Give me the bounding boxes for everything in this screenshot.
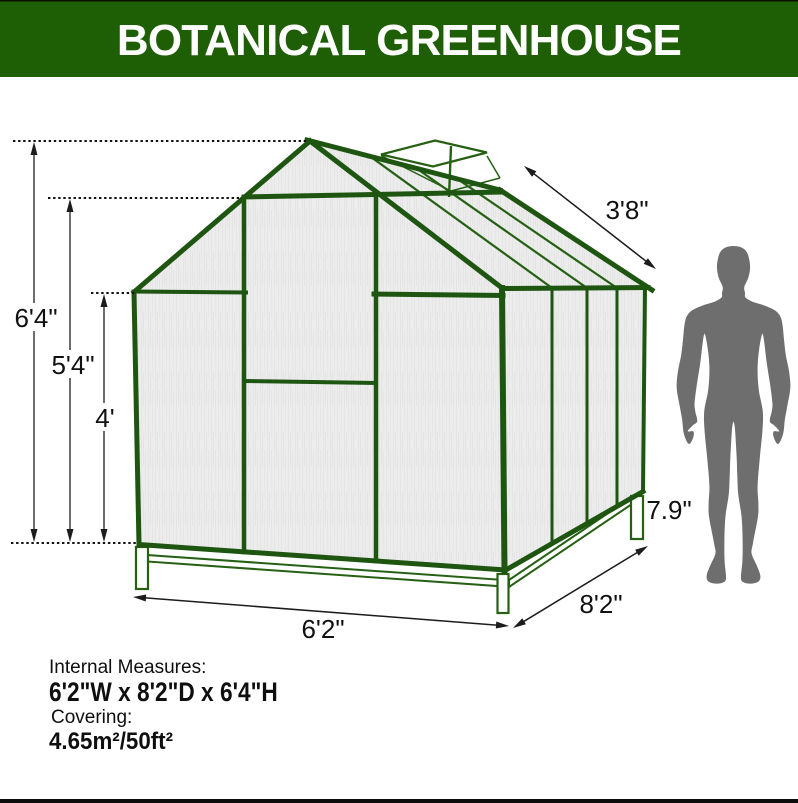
svg-text:5'4": 5'4" <box>51 350 94 380</box>
svg-text:3'8": 3'8" <box>605 195 648 225</box>
svg-text:4': 4' <box>95 403 114 433</box>
svg-text:7.9": 7.9" <box>646 495 691 525</box>
svg-text:6'2": 6'2" <box>301 614 344 644</box>
svg-text:6'4": 6'4" <box>14 303 57 333</box>
svg-text:8'2": 8'2" <box>579 589 622 619</box>
svg-text:BOTANICAL GREENHOUSE: BOTANICAL GREENHOUSE <box>117 16 681 65</box>
